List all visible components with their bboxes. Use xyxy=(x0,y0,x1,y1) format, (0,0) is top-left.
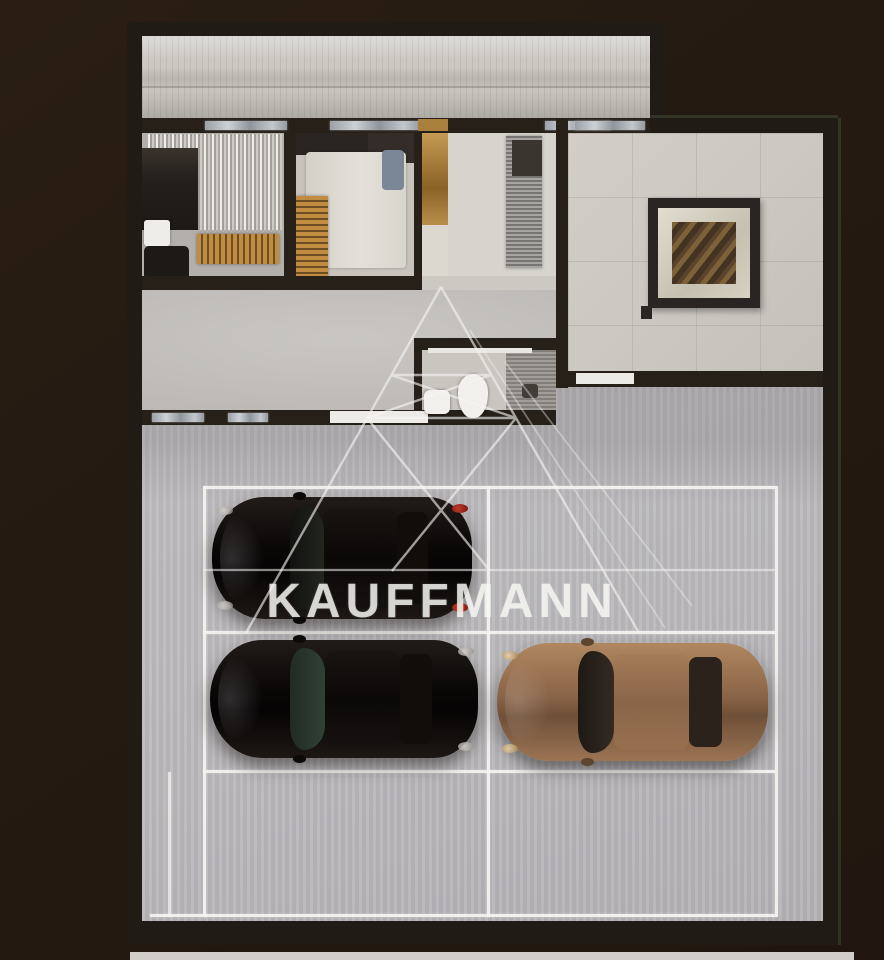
screenshot-canvas: KAUFFMANN xyxy=(0,0,884,960)
watermark-text: KAUFFMANN xyxy=(0,574,884,629)
watermark-pyramid-icon xyxy=(0,0,884,960)
